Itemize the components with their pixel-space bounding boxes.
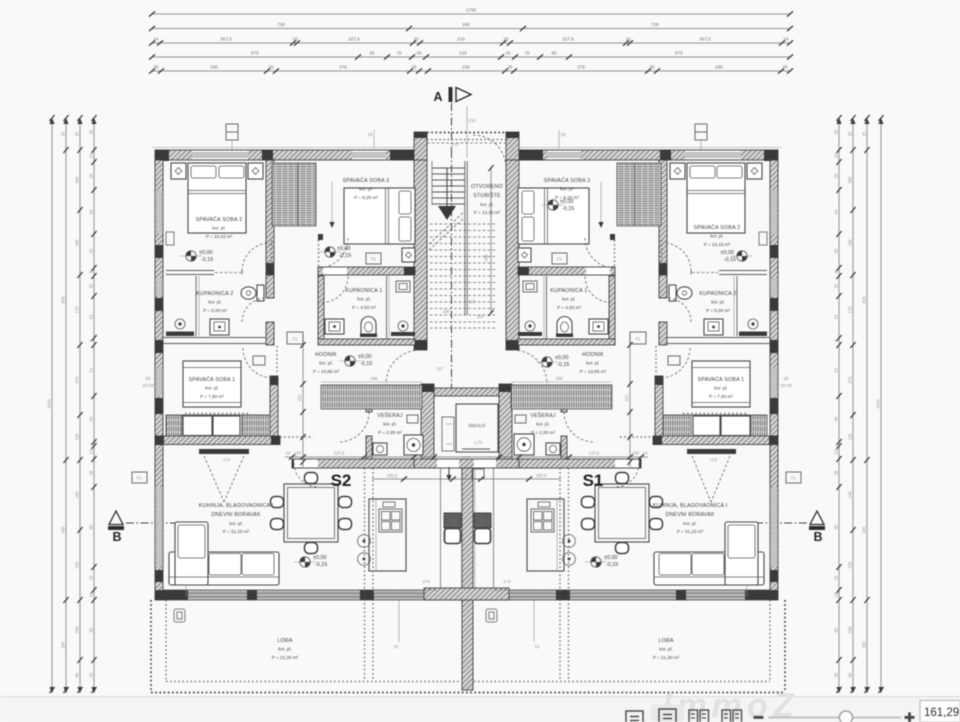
svg-text:726: 726 — [277, 22, 285, 27]
svg-text:185: 185 — [74, 239, 79, 247]
svg-text:10: 10 — [833, 592, 838, 597]
svg-text:28: 28 — [833, 173, 838, 178]
svg-text:10: 10 — [88, 153, 93, 158]
svg-text:230: 230 — [462, 65, 470, 70]
svg-text:367,5: 367,5 — [699, 37, 711, 42]
svg-text:LOĐA: LOĐA — [277, 638, 292, 644]
svg-text:SPAVAĆA SOBA 2: SPAVAĆA SOBA 2 — [694, 224, 741, 231]
svg-text:110: 110 — [477, 314, 484, 319]
svg-text:P = 9,25 m²: P = 9,25 m² — [555, 195, 579, 200]
svg-text:25: 25 — [782, 65, 788, 70]
svg-text:44: 44 — [833, 209, 838, 214]
svg-text:kor. pl.: kor. pl. — [586, 361, 600, 366]
svg-text:±0,00: ±0,00 — [721, 250, 734, 256]
svg-text:290: 290 — [462, 22, 470, 27]
svg-text:24: 24 — [783, 37, 789, 42]
svg-text:488: 488 — [484, 254, 489, 262]
svg-text:DNEVNI BORAVAK: DNEVNI BORAVAK — [211, 512, 260, 518]
svg-text:~2,6: ~2,6 — [222, 457, 231, 462]
svg-text:±0,00: ±0,00 — [604, 555, 617, 561]
svg-text:25: 25 — [507, 65, 513, 70]
svg-text:34: 34 — [88, 248, 93, 253]
svg-text:F1: F1 — [636, 337, 642, 342]
svg-text:P = 5,00 m²: P = 5,00 m² — [203, 308, 227, 313]
svg-text:P = 31,25 m²: P = 31,25 m² — [677, 529, 704, 534]
svg-text:13: 13 — [833, 449, 838, 454]
svg-text:kor. pl.: kor. pl. — [480, 202, 494, 207]
svg-text:30: 30 — [88, 672, 93, 677]
svg-text:575: 575 — [675, 51, 683, 56]
svg-text:F1: F1 — [791, 476, 797, 481]
svg-text:327,5: 327,5 — [562, 37, 574, 42]
svg-text:P = 5,00 m²: P = 5,00 m² — [706, 308, 730, 313]
svg-text:P = 7,80 m²: P = 7,80 m² — [709, 394, 733, 399]
svg-text:275: 275 — [74, 376, 79, 384]
svg-text:375: 375 — [339, 65, 347, 70]
svg-text:296: 296 — [371, 376, 379, 381]
svg-text:-0,15: -0,15 — [724, 257, 736, 263]
svg-text:60: 60 — [833, 627, 838, 632]
svg-text:728: 728 — [651, 22, 659, 27]
svg-text:P = 14,35 m²: P = 14,35 m² — [474, 210, 501, 215]
svg-text:10: 10 — [88, 592, 93, 597]
svg-text:F1: F1 — [371, 257, 377, 262]
svg-text:10: 10 — [292, 37, 298, 42]
svg-text:SPAVAĆA SOBA 2: SPAVAĆA SOBA 2 — [196, 216, 243, 223]
svg-text:110: 110 — [469, 299, 476, 304]
svg-text:kor. pl.: kor. pl. — [319, 361, 333, 366]
svg-text:101: 101 — [624, 394, 629, 402]
svg-text:290: 290 — [74, 176, 79, 184]
svg-text:2+0: 2+0 — [422, 579, 430, 584]
svg-text:575: 575 — [251, 51, 259, 56]
svg-text:117: 117 — [437, 366, 444, 371]
svg-text:KUPAONICA 2: KUPAONICA 2 — [699, 291, 736, 297]
svg-text:B: B — [112, 530, 121, 544]
svg-text:120: 120 — [847, 433, 852, 441]
svg-text:1,70: 1,70 — [474, 440, 483, 445]
svg-text:DNEVNI BORAVAK: DNEVNI BORAVAK — [665, 512, 714, 518]
svg-text:295: 295 — [715, 65, 723, 70]
svg-text:15: 15 — [394, 644, 399, 649]
svg-text:170: 170 — [74, 306, 79, 314]
svg-text:25: 25 — [153, 65, 159, 70]
svg-text:29: 29 — [561, 132, 566, 137]
svg-text:51: 51 — [88, 367, 93, 372]
svg-text:kor. pl.: kor. pl. — [359, 187, 373, 192]
svg-text:P = 2,95 m²: P = 2,95 m² — [378, 430, 402, 435]
svg-text:210: 210 — [469, 118, 477, 123]
svg-text:-0,15: -0,15 — [606, 562, 618, 568]
svg-text:375: 375 — [577, 65, 585, 70]
svg-text:VEŠERAJ: VEŠERAJ — [530, 412, 556, 419]
svg-text:kor. pl.: kor. pl. — [683, 521, 697, 526]
svg-text:kor. pl.: kor. pl. — [560, 187, 574, 192]
svg-text:25: 25 — [74, 131, 79, 136]
svg-text:P = 10,85 m²: P = 10,85 m² — [313, 369, 340, 374]
svg-text:28: 28 — [88, 173, 93, 178]
svg-text:±0,00: ±0,00 — [337, 246, 350, 252]
svg-text:28: 28 — [88, 470, 93, 475]
svg-text:±0,00: ±0,00 — [555, 355, 568, 361]
svg-text:15: 15 — [535, 644, 540, 649]
svg-text:34: 34 — [833, 248, 838, 253]
svg-text:P = 4,50 m²: P = 4,50 m² — [557, 305, 581, 310]
svg-text:1+0: 1+0 — [451, 142, 459, 147]
svg-text:SPAVAĆA SOBA 1: SPAVAĆA SOBA 1 — [698, 376, 745, 383]
svg-text:70: 70 — [524, 51, 530, 56]
svg-text:-0,15: -0,15 — [562, 206, 574, 212]
svg-text:P = 10,85 m²: P = 10,85 m² — [580, 369, 607, 374]
svg-text:230: 230 — [74, 626, 79, 634]
svg-text:46: 46 — [833, 416, 838, 421]
svg-text:100: 100 — [443, 309, 451, 314]
svg-text:20: 20 — [833, 129, 838, 134]
svg-text:90: 90 — [74, 672, 79, 677]
svg-text:15+25: 15+25 — [780, 383, 792, 388]
svg-text:80: 80 — [551, 51, 557, 56]
svg-text:25: 25 — [411, 65, 417, 70]
svg-text:23: 23 — [88, 575, 93, 580]
svg-text:14: 14 — [286, 451, 291, 456]
svg-text:kor. pl.: kor. pl. — [278, 647, 292, 652]
svg-text:kor. pl.: kor. pl. — [212, 226, 226, 231]
svg-text:220: 220 — [74, 561, 79, 569]
svg-text:42: 42 — [88, 314, 93, 319]
svg-text:40: 40 — [416, 51, 422, 56]
svg-text:-0,15: -0,15 — [339, 253, 351, 259]
svg-text:20: 20 — [833, 283, 838, 288]
svg-text:10: 10 — [833, 153, 838, 158]
svg-text:25: 25 — [847, 131, 852, 136]
svg-text:23: 23 — [833, 575, 838, 580]
svg-text:OTVORENO: OTVORENO — [471, 184, 503, 190]
svg-text:kor. pl.: kor. pl. — [711, 300, 725, 305]
svg-text:HODNIK: HODNIK — [315, 352, 337, 358]
svg-text:170: 170 — [847, 306, 852, 314]
svg-text:±0,00: ±0,00 — [199, 250, 212, 256]
svg-text:kor. pl.: kor. pl. — [562, 297, 576, 302]
svg-text:~2,6: ~2,6 — [709, 457, 718, 462]
svg-text:210: 210 — [457, 37, 465, 42]
svg-text:210: 210 — [459, 51, 467, 56]
svg-text:220: 220 — [847, 561, 852, 569]
svg-text:P = 21,30 m²: P = 21,30 m² — [653, 655, 680, 660]
svg-text:825: 825 — [60, 296, 65, 304]
svg-text:SPAVAĆA SOBA 3: SPAVAĆA SOBA 3 — [544, 177, 591, 184]
svg-text:51: 51 — [833, 367, 838, 372]
svg-text:kor. pl.: kor. pl. — [383, 422, 397, 427]
svg-text:±0,00: ±0,00 — [313, 555, 326, 561]
svg-text:P = 31,25 m²: P = 31,25 m² — [223, 529, 250, 534]
svg-text:15+25: 15+25 — [142, 383, 154, 388]
svg-text:P = 9,25 m²: P = 9,25 m² — [354, 195, 378, 200]
svg-text:140: 140 — [74, 491, 79, 499]
svg-text:KUPAONICA 2: KUPAONICA 2 — [196, 291, 233, 297]
svg-text:kor. pl.: kor. pl. — [714, 386, 728, 391]
svg-text:28: 28 — [833, 470, 838, 475]
svg-text:44: 44 — [88, 209, 93, 214]
svg-text:127,6: 127,6 — [334, 451, 345, 456]
svg-text:14: 14 — [643, 451, 648, 456]
svg-text:29: 29 — [368, 132, 373, 137]
svg-text:20: 20 — [503, 37, 509, 42]
svg-text:SPAVAĆA SOBA 1: SPAVAĆA SOBA 1 — [189, 376, 236, 383]
svg-text:250: 250 — [60, 641, 65, 649]
svg-text:KUPAONICA 1: KUPAONICA 1 — [550, 288, 587, 294]
svg-text:F1: F1 — [137, 476, 143, 481]
svg-text:VEŠERAJ: VEŠERAJ — [377, 412, 403, 419]
svg-text:29: 29 — [784, 376, 789, 381]
svg-text:kor. pl.: kor. pl. — [536, 422, 550, 427]
svg-text:400: 400 — [861, 526, 866, 534]
svg-text:20: 20 — [88, 283, 93, 288]
svg-text:127,6: 127,6 — [589, 451, 600, 456]
svg-text:29: 29 — [146, 376, 151, 381]
svg-text:20: 20 — [88, 129, 93, 134]
svg-text:25: 25 — [649, 65, 655, 70]
svg-text:100: 100 — [294, 451, 302, 456]
svg-text:25: 25 — [268, 65, 274, 70]
svg-text:F1: F1 — [293, 337, 299, 342]
svg-text:-0,15: -0,15 — [201, 257, 213, 263]
svg-text:kor. pl.: kor. pl. — [205, 386, 219, 391]
svg-text:kor. pl.: kor. pl. — [710, 234, 724, 239]
svg-text:42: 42 — [833, 314, 838, 319]
svg-text:LOĐA: LOĐA — [658, 638, 673, 644]
svg-text:B: B — [813, 530, 822, 544]
svg-text:120: 120 — [74, 433, 79, 441]
svg-text:STUBIŠTE: STUBIŠTE — [473, 192, 501, 199]
svg-text:90: 90 — [847, 672, 852, 677]
svg-text:-0,15: -0,15 — [557, 362, 569, 368]
svg-text:25: 25 — [60, 131, 65, 136]
svg-text:P = 4,50 m²: P = 4,50 m² — [352, 305, 376, 310]
svg-text:80: 80 — [88, 524, 93, 529]
svg-text:40: 40 — [505, 51, 511, 56]
svg-text:182,6: 182,6 — [387, 473, 398, 478]
svg-text:275: 275 — [847, 376, 852, 384]
svg-text:P = 10,15 m²: P = 10,15 m² — [206, 234, 233, 239]
svg-text:10: 10 — [625, 37, 631, 42]
svg-text:P = 21,30 m²: P = 21,30 m² — [272, 655, 299, 660]
svg-text:25: 25 — [861, 131, 866, 136]
svg-text:KUHINJA, BLAGOVAONICA I: KUHINJA, BLAGOVAONICA I — [199, 503, 274, 509]
svg-text:1444: 1444 — [875, 399, 880, 409]
svg-text:367,5: 367,5 — [220, 37, 232, 42]
svg-text:825: 825 — [861, 296, 866, 304]
svg-text:230: 230 — [847, 626, 852, 634]
svg-text:KUPAONICA 1: KUPAONICA 1 — [345, 288, 382, 294]
svg-text:DIZALO: DIZALO — [469, 423, 486, 428]
svg-text:46: 46 — [88, 416, 93, 421]
svg-text:182,6: 182,6 — [536, 473, 547, 478]
svg-text:60: 60 — [88, 627, 93, 632]
svg-text:S1: S1 — [583, 471, 604, 490]
svg-text:2+0: 2+0 — [503, 579, 511, 584]
svg-text:-0,15: -0,15 — [360, 361, 372, 367]
svg-text:20: 20 — [413, 37, 419, 42]
svg-text:KUHINJA, BLAGOVAONICA I: KUHINJA, BLAGOVAONICA I — [653, 503, 728, 509]
svg-text:30: 30 — [833, 672, 838, 677]
svg-text:1444: 1444 — [46, 399, 51, 409]
svg-text:70: 70 — [396, 51, 402, 56]
svg-text:327,6: 327,6 — [348, 37, 360, 42]
svg-text:F1: F1 — [557, 257, 563, 262]
svg-text:P = 7,80 m²: P = 7,80 m² — [200, 394, 224, 399]
svg-text:161,29: 161,29 — [924, 707, 959, 719]
svg-text:296: 296 — [556, 376, 564, 381]
svg-text:101: 101 — [297, 394, 302, 402]
svg-text:185: 185 — [847, 239, 852, 247]
svg-text:kor. pl.: kor. pl. — [229, 521, 243, 526]
svg-text:24: 24 — [153, 37, 159, 42]
svg-text:SPAVAĆA SOBA 3: SPAVAĆA SOBA 3 — [343, 177, 390, 184]
svg-text:-0,15: -0,15 — [315, 562, 327, 568]
svg-text:100: 100 — [632, 451, 640, 456]
svg-text:kor. pl.: kor. pl. — [208, 300, 222, 305]
svg-text:A: A — [433, 90, 442, 104]
svg-text:kor. pl.: kor. pl. — [659, 647, 673, 652]
svg-text:80: 80 — [833, 524, 838, 529]
svg-text:±0,00: ±0,00 — [358, 354, 371, 360]
svg-text:250: 250 — [861, 641, 866, 649]
svg-text:400: 400 — [60, 526, 65, 534]
svg-text:kor. pl.: kor. pl. — [357, 297, 371, 302]
svg-text:1780: 1780 — [466, 8, 477, 13]
svg-text:290: 290 — [847, 176, 852, 184]
svg-text:P = 10,15 m²: P = 10,15 m² — [704, 242, 731, 247]
svg-text:±0,00: ±0,00 — [560, 199, 573, 205]
svg-text:295: 295 — [210, 65, 218, 70]
svg-text:S2: S2 — [331, 471, 352, 490]
svg-text:80: 80 — [369, 51, 375, 56]
svg-text:13: 13 — [88, 449, 93, 454]
svg-text:HODNIK: HODNIK — [582, 352, 604, 358]
svg-text:140: 140 — [847, 491, 852, 499]
svg-text:P = 2,95 m²: P = 2,95 m² — [531, 430, 555, 435]
